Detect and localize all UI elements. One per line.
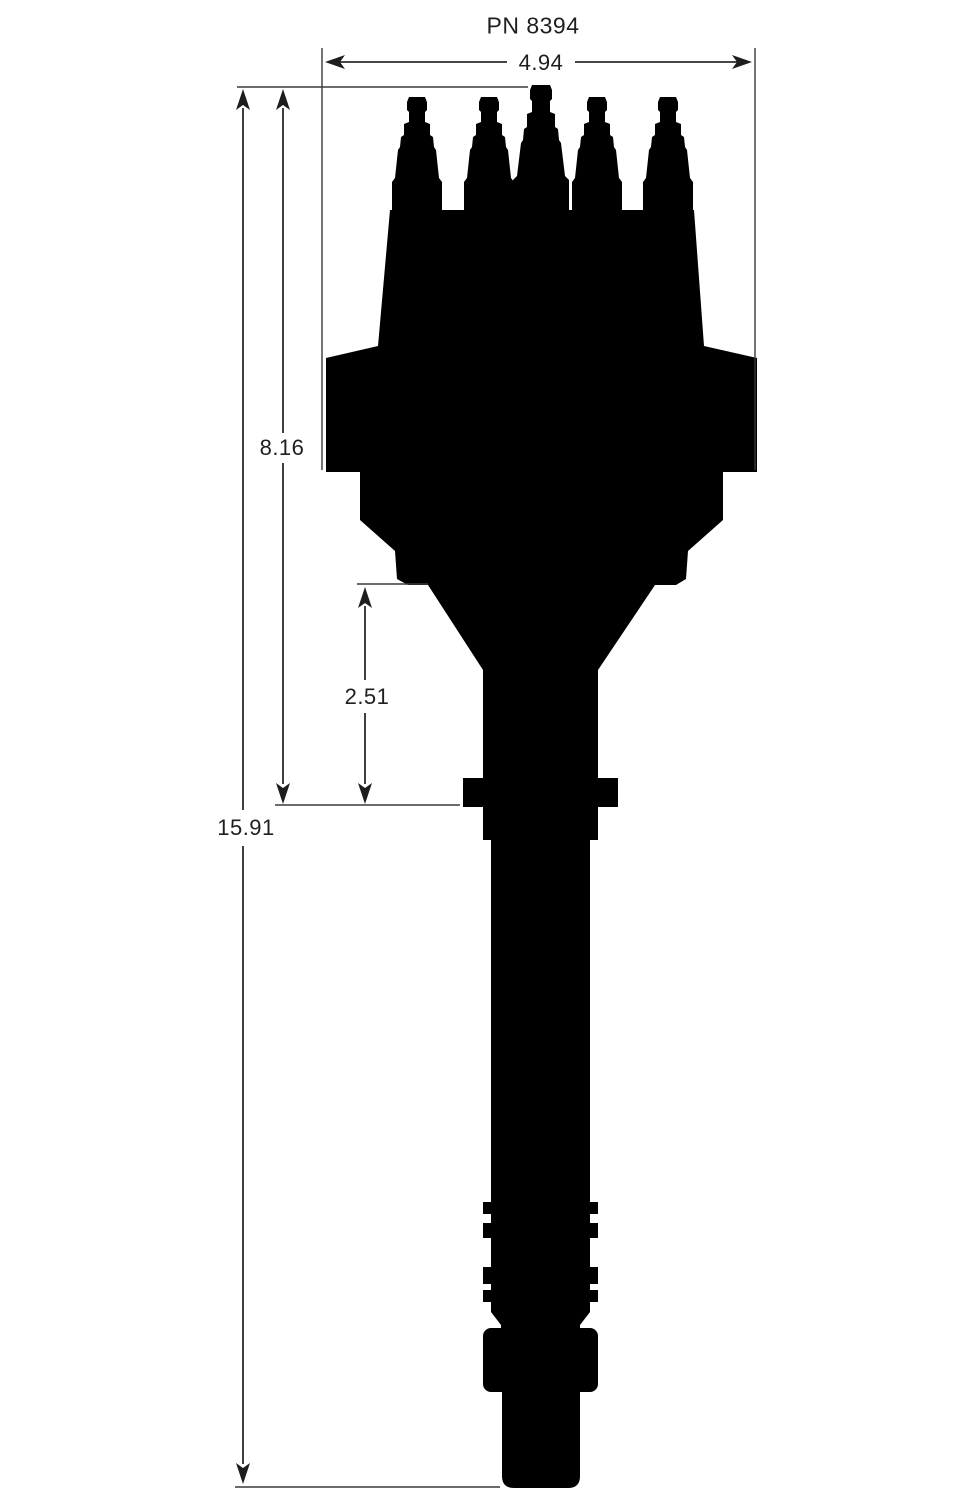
arrowhead-down-overall bbox=[236, 1463, 250, 1484]
clamp-collar bbox=[463, 778, 618, 807]
shaft-ring-4 bbox=[483, 1290, 598, 1302]
shaft-ring-1 bbox=[483, 1202, 598, 1214]
cap-tower-4 bbox=[572, 97, 622, 215]
arrowhead-up-lower bbox=[358, 587, 372, 608]
dim-label-lower-section: 2.51 bbox=[342, 684, 393, 710]
sub-collar bbox=[483, 805, 598, 840]
dim-label-cap-width: 4.94 bbox=[516, 50, 567, 76]
dim-label-upper-height: 8.16 bbox=[257, 435, 308, 461]
distributor-dimension-drawing bbox=[0, 0, 971, 1500]
dim-label-overall-height: 15.91 bbox=[214, 815, 278, 841]
shaft-tip bbox=[502, 1390, 580, 1488]
housing-taper-funnel bbox=[360, 471, 723, 692]
distributor-silhouette bbox=[326, 85, 757, 1488]
arrowhead-down-upper bbox=[276, 783, 290, 804]
cap-tower-5 bbox=[643, 97, 693, 215]
part-number-title: PN 8394 bbox=[483, 13, 582, 40]
gear-collar bbox=[483, 1328, 598, 1392]
technical-drawing-page: PN 8394 4.94 8.16 2.51 15.91 bbox=[0, 0, 971, 1500]
neck-section bbox=[483, 668, 598, 780]
arrowhead-down-lower bbox=[358, 783, 372, 804]
shaft-ring-2 bbox=[483, 1223, 598, 1238]
cap-tower-1 bbox=[392, 97, 442, 215]
arrowhead-up-upper bbox=[276, 89, 290, 110]
cap-body-and-flange bbox=[326, 210, 757, 472]
cap-tower-2 bbox=[464, 97, 514, 215]
shaft-ring-3 bbox=[483, 1267, 598, 1284]
arrowhead-up-overall bbox=[236, 89, 250, 110]
cap-tower-center bbox=[513, 85, 569, 230]
shaft bbox=[491, 836, 590, 1312]
